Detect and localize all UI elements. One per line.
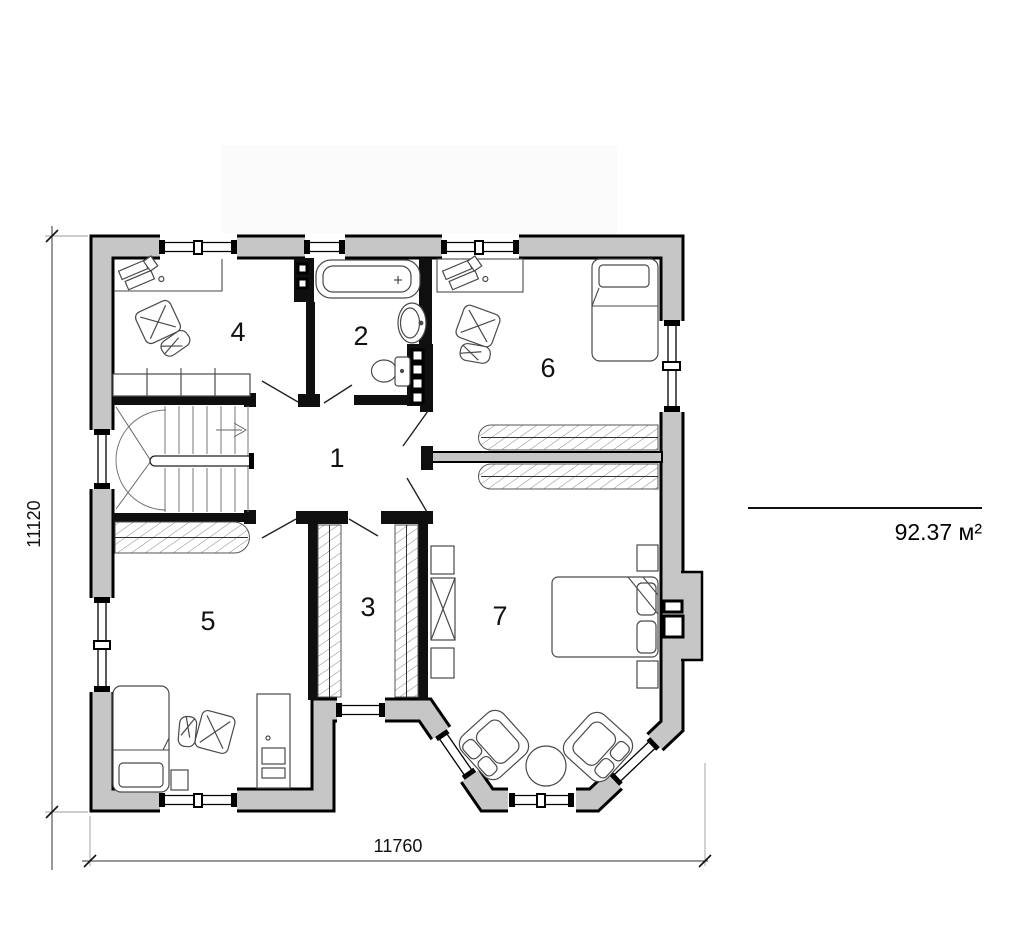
nightstand-icon xyxy=(637,661,658,688)
room-label-3: 3 xyxy=(360,592,375,622)
room-label-4: 4 xyxy=(230,317,245,347)
room-label-2: 2 xyxy=(353,321,368,351)
closet-room3-right-icon xyxy=(395,525,418,697)
window-icon xyxy=(304,233,345,261)
room-label-7: 7 xyxy=(492,601,507,631)
door-leaf-room5 xyxy=(262,519,296,538)
room5-furniture xyxy=(113,686,290,792)
window-icon xyxy=(508,786,576,814)
room-label-1: 1 xyxy=(329,443,344,473)
door-leaf-room4 xyxy=(262,381,298,402)
bed-double-icon xyxy=(552,577,658,657)
faint-roof-shade xyxy=(222,145,617,240)
floor-plan-page: 1 2 3 4 5 6 7 11120 11760 92.37 м² xyxy=(0,0,1024,928)
door-leaf-bathroom xyxy=(324,385,352,403)
window-icon xyxy=(88,429,116,489)
sink-icon xyxy=(398,303,426,343)
staircase xyxy=(116,406,254,512)
toilet-icon xyxy=(372,357,411,386)
closet-room3-left-icon xyxy=(318,525,341,697)
bathtub-icon xyxy=(316,260,420,298)
chimney-vent-icon xyxy=(664,601,682,612)
door-leaf-room6 xyxy=(403,411,428,446)
bathroom-fixtures xyxy=(316,260,426,386)
bed-single-icon xyxy=(592,259,658,361)
nightstand-icon xyxy=(637,545,658,571)
window-icon xyxy=(336,696,385,724)
wardrobe-room7-icon xyxy=(479,464,659,489)
room-label-5: 5 xyxy=(200,606,215,636)
cabinet-row-icon xyxy=(113,368,250,396)
dimension-width-label: 11760 xyxy=(374,836,423,856)
window-icon xyxy=(441,233,519,261)
room-label-6: 6 xyxy=(540,353,555,383)
door-leaf-room3 xyxy=(349,519,378,536)
dimension-height-label: 11120 xyxy=(24,500,44,547)
window-icon xyxy=(88,597,116,692)
door-leaf-room7 xyxy=(407,478,427,512)
nightstand-icon xyxy=(171,770,188,790)
window-icon xyxy=(658,320,686,412)
desk-chair-icon xyxy=(134,297,195,364)
desk-icon xyxy=(257,694,290,788)
room4-furniture xyxy=(113,255,250,396)
tv-stand-icon xyxy=(431,546,455,678)
area-label: 92.37 м² xyxy=(895,519,983,545)
dimension-left: 11120 xyxy=(24,226,88,870)
wardrobe-room6-icon xyxy=(479,425,659,450)
chimney-vent-icon xyxy=(664,616,683,637)
window-icon xyxy=(159,233,237,261)
room7-furniture xyxy=(431,545,658,787)
round-table-icon xyxy=(526,746,566,786)
wardrobe-room5-icon xyxy=(115,522,250,553)
shelf-icon xyxy=(118,255,165,290)
desk-chair-icon xyxy=(173,704,237,759)
stair-handrail xyxy=(150,456,253,466)
bed-single-icon xyxy=(113,686,169,792)
area-annotation: 92.37 м² xyxy=(748,508,982,545)
desk-chair-icon xyxy=(447,304,505,370)
floor-plan-canvas: 1 2 3 4 5 6 7 11120 11760 92.37 м² xyxy=(0,0,1024,928)
